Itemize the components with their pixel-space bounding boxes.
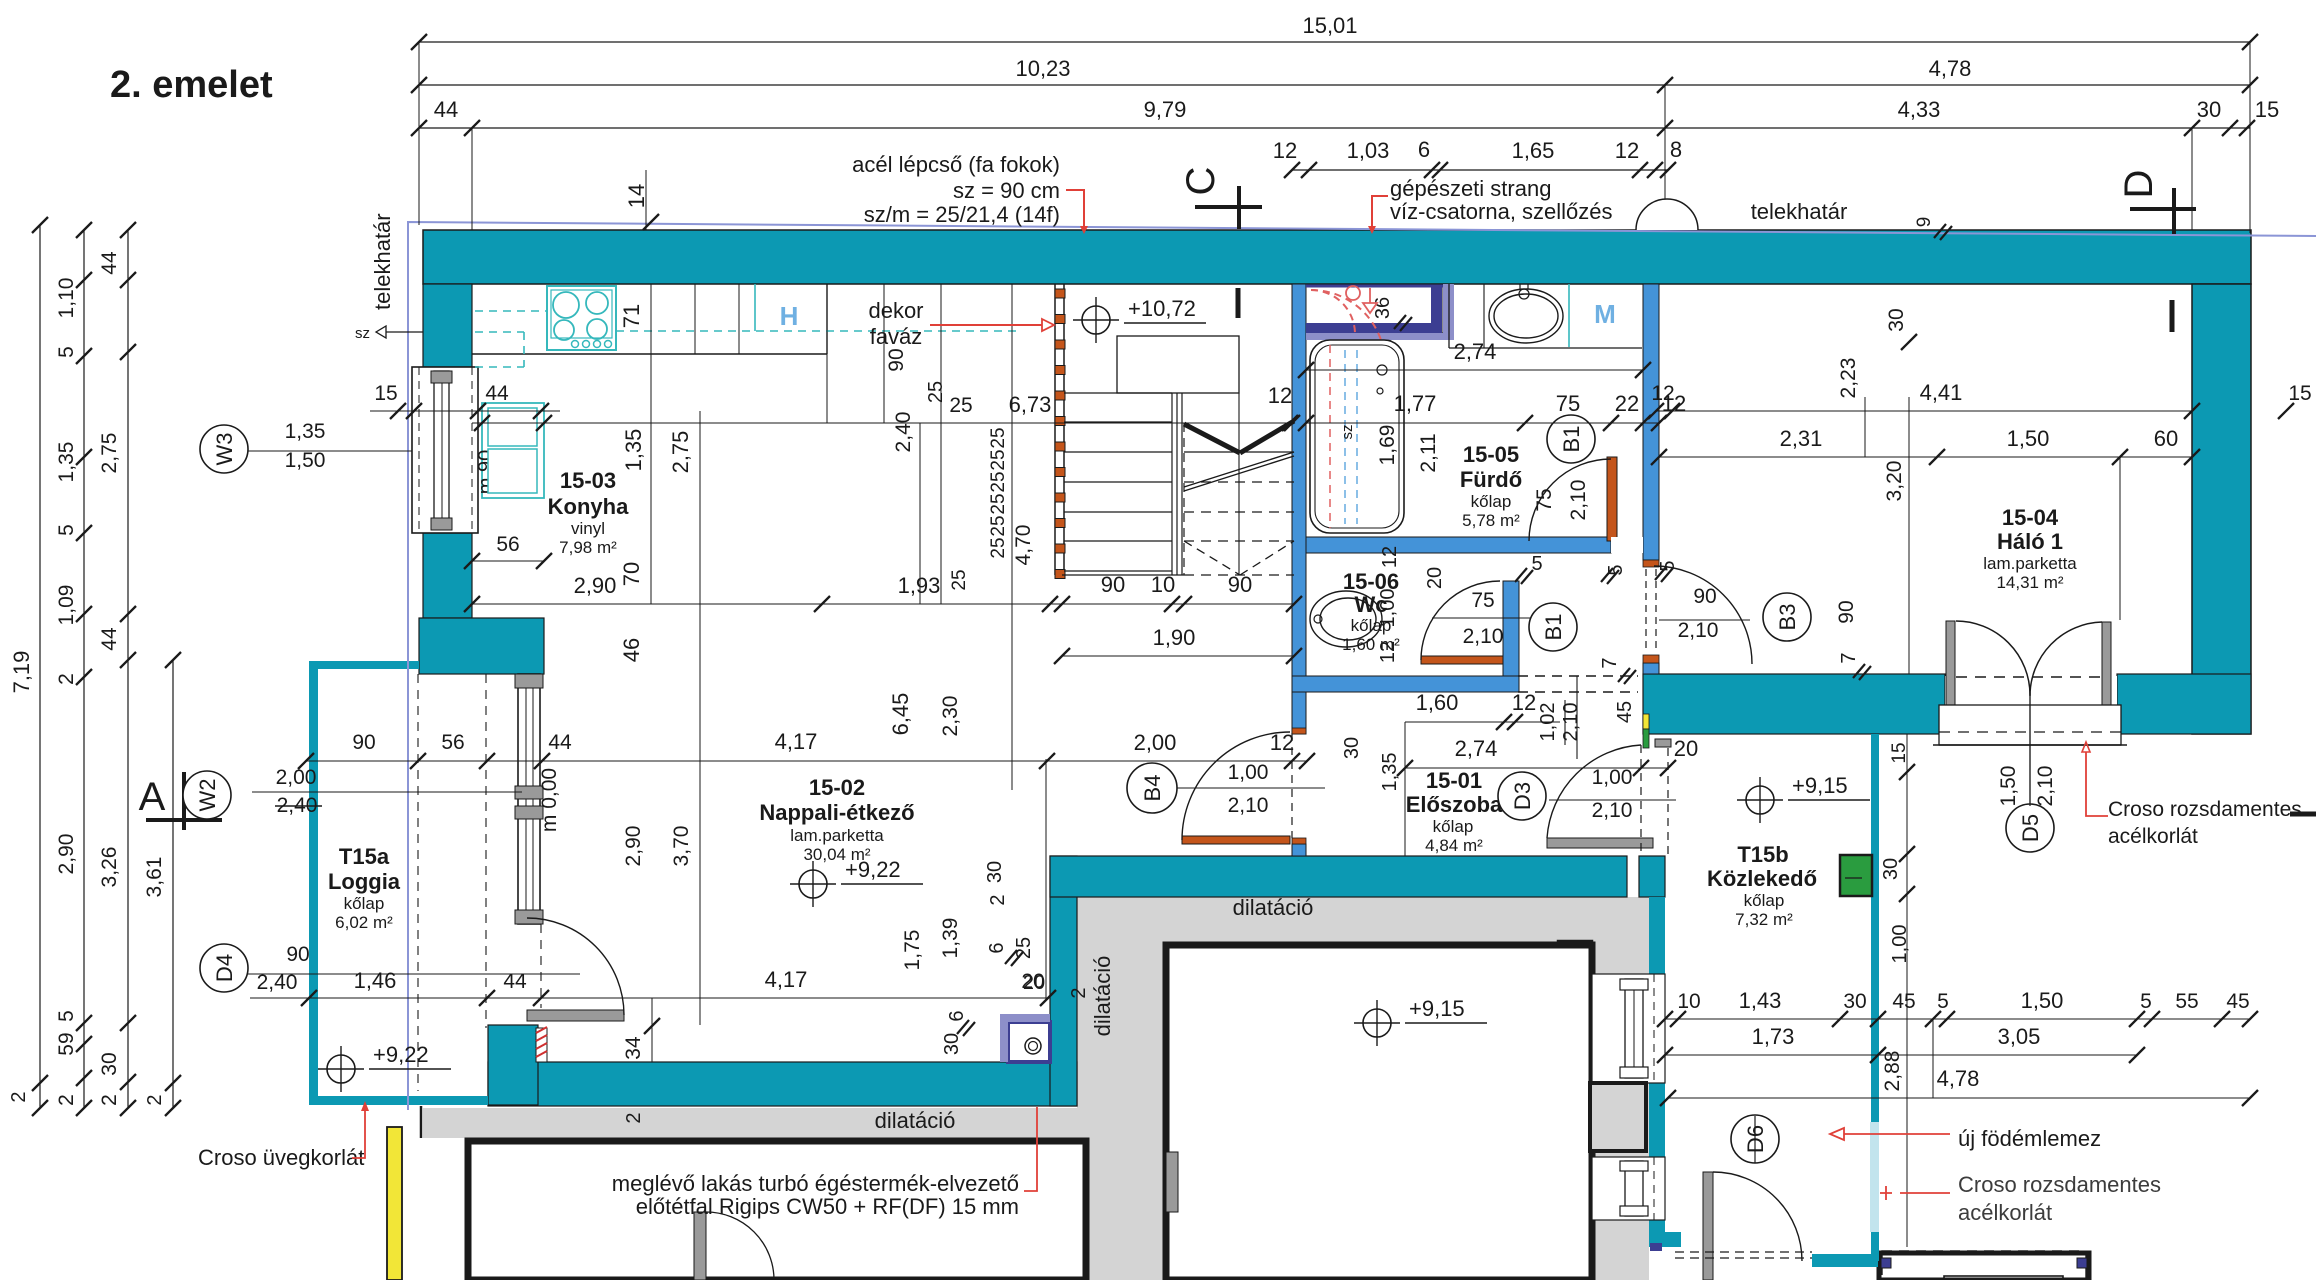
svg-text:15-02: 15-02 [809, 775, 865, 800]
svg-text:gépészeti strang: gépészeti strang [1390, 176, 1551, 201]
svg-text:A: A [139, 775, 166, 819]
svg-text:12: 12 [1379, 546, 1401, 568]
svg-text:1,35: 1,35 [55, 442, 78, 483]
svg-text:6,02 m²: 6,02 m² [335, 913, 393, 932]
svg-text:90: 90 [286, 943, 309, 966]
svg-text:15: 15 [2288, 382, 2311, 405]
svg-text:7,98 m²: 7,98 m² [559, 538, 617, 557]
svg-text:34: 34 [622, 1036, 645, 1060]
svg-text:12: 12 [1273, 138, 1297, 163]
svg-text:1,60: 1,60 [1416, 690, 1459, 715]
svg-text:36: 36 [1372, 297, 1394, 319]
svg-text:2: 2 [55, 673, 78, 685]
svg-text:Croso rozsdamentes: Croso rozsdamentes [2108, 798, 2302, 821]
svg-text:30: 30 [1341, 737, 1363, 759]
svg-text:1,00: 1,00 [1889, 925, 1911, 964]
svg-text:B1: B1 [1541, 614, 1566, 641]
svg-text:1,73: 1,73 [1752, 1024, 1795, 1049]
svg-text:12: 12 [1512, 690, 1536, 715]
svg-text:22: 22 [1615, 391, 1639, 416]
svg-text:3,05: 3,05 [1998, 1024, 2041, 1049]
svg-text:25: 25 [949, 569, 970, 590]
svg-text:2: 2 [1068, 987, 1090, 998]
svg-text:1,69: 1,69 [1376, 425, 1399, 466]
svg-text:Loggia: Loggia [328, 869, 401, 894]
svg-text:acél lépcső (fa fokok): acél lépcső (fa fokok) [852, 152, 1060, 177]
svg-text:90: 90 [1693, 585, 1716, 608]
svg-text:6: 6 [986, 942, 1008, 953]
svg-text:20: 20 [1424, 567, 1446, 589]
svg-text:1,39: 1,39 [939, 918, 962, 959]
svg-text:Konyha: Konyha [548, 494, 629, 519]
svg-text:2: 2 [55, 1094, 78, 1106]
svg-text:12: 12 [1268, 383, 1292, 408]
svg-text:kőlap: kőlap [344, 894, 385, 913]
svg-text:2,10: 2,10 [2034, 766, 2057, 807]
svg-text:2,31: 2,31 [1780, 426, 1823, 451]
svg-text:7: 7 [1838, 652, 1860, 663]
svg-text:7: 7 [1599, 657, 1621, 668]
svg-text:Előszoba: Előszoba [1406, 792, 1503, 817]
svg-text:25: 25 [949, 394, 972, 417]
svg-text:30: 30 [2197, 97, 2221, 122]
svg-text:D4: D4 [212, 954, 237, 982]
svg-text:25: 25 [988, 471, 1009, 492]
svg-text:25: 25 [1013, 937, 1035, 959]
svg-text:14: 14 [624, 184, 649, 208]
svg-text:meglévő lakás turbó égéstermék: meglévő lakás turbó égéstermék-elvezető [612, 1171, 1019, 1196]
svg-text:W3: W3 [212, 433, 237, 466]
svg-text:25: 25 [988, 449, 1009, 470]
svg-text:6,45: 6,45 [888, 693, 913, 736]
svg-text:75: 75 [1556, 391, 1580, 416]
svg-text:90: 90 [352, 731, 375, 754]
svg-text:44: 44 [98, 627, 121, 651]
svg-text:5: 5 [55, 524, 78, 536]
svg-text:25: 25 [925, 381, 947, 403]
svg-text:dilatáció: dilatáció [1090, 956, 1115, 1037]
svg-text:vinyl: vinyl [571, 519, 605, 538]
svg-text:1,46: 1,46 [354, 968, 397, 993]
svg-text:90: 90 [885, 348, 908, 371]
svg-text:1,00: 1,00 [1228, 761, 1269, 784]
svg-text:59: 59 [55, 1032, 78, 1055]
svg-text:56: 56 [441, 731, 464, 754]
svg-text:20: 20 [1021, 970, 1044, 993]
svg-text:5: 5 [1937, 990, 1949, 1013]
svg-text:1,43: 1,43 [1739, 988, 1782, 1013]
svg-text:2: 2 [623, 1112, 645, 1123]
svg-text:sz: sz [1339, 425, 1356, 440]
svg-text:5: 5 [55, 346, 78, 358]
svg-text:lam.parketta: lam.parketta [1983, 554, 2077, 573]
svg-text:Croso üvegkorlát: Croso üvegkorlát [198, 1145, 364, 1170]
svg-text:Háló 1: Háló 1 [1997, 529, 2063, 554]
svg-text:71: 71 [619, 304, 644, 328]
svg-text:45: 45 [1892, 990, 1915, 1013]
svg-text:C: C [1179, 167, 1223, 196]
svg-text:10: 10 [1677, 990, 1700, 1013]
svg-text:Croso rozsdamentes: Croso rozsdamentes [1958, 1172, 2161, 1197]
svg-text:3,70: 3,70 [670, 826, 693, 867]
svg-text:lam.parketta: lam.parketta [790, 826, 884, 845]
svg-text:4,41: 4,41 [1920, 380, 1963, 405]
svg-text:90: 90 [1835, 600, 1858, 623]
svg-text:1,77: 1,77 [1394, 391, 1437, 416]
svg-text:1,10: 1,10 [55, 278, 78, 319]
svg-text:M: M [1594, 299, 1616, 329]
svg-text:12: 12 [1615, 138, 1639, 163]
svg-text:4,78: 4,78 [1937, 1066, 1980, 1091]
svg-text:2,90: 2,90 [622, 826, 645, 867]
svg-text:30: 30 [984, 861, 1006, 883]
svg-text:Fürdő: Fürdő [1460, 467, 1522, 492]
svg-text:2,23: 2,23 [1837, 358, 1860, 399]
svg-text:90: 90 [1228, 572, 1252, 597]
svg-text:10: 10 [1151, 572, 1175, 597]
svg-text:1,03: 1,03 [1347, 138, 1390, 163]
svg-text:12: 12 [1377, 641, 1399, 663]
svg-text:30: 30 [1880, 858, 1902, 880]
svg-text:1,65: 1,65 [1512, 138, 1555, 163]
svg-text:9,79: 9,79 [1144, 97, 1187, 122]
svg-text:kőlap: kőlap [1471, 492, 1512, 511]
svg-text:1,50: 1,50 [2007, 426, 2050, 451]
svg-text:+10,72: +10,72 [1128, 296, 1196, 321]
svg-text:1,50: 1,50 [2021, 988, 2064, 1013]
svg-text:4,70: 4,70 [1012, 525, 1035, 566]
svg-text:4,17: 4,17 [775, 729, 818, 754]
svg-text:44: 44 [485, 382, 509, 405]
svg-text:2,10: 2,10 [1567, 480, 1590, 521]
svg-text:faváz: faváz [870, 324, 923, 349]
svg-text:70: 70 [619, 562, 644, 586]
svg-text:1,00: 1,00 [1592, 766, 1633, 789]
svg-text:5: 5 [55, 1010, 78, 1022]
svg-text:25: 25 [988, 537, 1009, 558]
svg-text:15,01: 15,01 [1302, 13, 1357, 38]
svg-text:H: H [780, 301, 799, 331]
svg-text:25: 25 [988, 493, 1009, 514]
svg-text:2: 2 [987, 894, 1009, 905]
svg-text:+9,15: +9,15 [1409, 996, 1465, 1021]
svg-text:1,09: 1,09 [55, 585, 78, 626]
svg-text:55: 55 [2175, 990, 2198, 1013]
svg-text:2,40: 2,40 [892, 412, 915, 453]
svg-text:30: 30 [941, 1033, 963, 1055]
svg-text:kőlap: kőlap [1744, 891, 1785, 910]
svg-text:T15a: T15a [339, 844, 390, 869]
svg-text:víz-csatorna, szellőzés: víz-csatorna, szellőzés [1390, 199, 1613, 224]
svg-text:15-01: 15-01 [1426, 768, 1482, 793]
svg-text:4,84 m²: 4,84 m² [1425, 836, 1483, 855]
svg-text:T15b: T15b [1737, 842, 1788, 867]
svg-text:+9,22: +9,22 [845, 857, 901, 882]
svg-text:3,26: 3,26 [98, 847, 121, 888]
svg-text:8: 8 [1670, 137, 1682, 162]
svg-text:5,78 m²: 5,78 m² [1462, 511, 1520, 530]
svg-text:5: 5 [1657, 560, 1679, 571]
svg-text:2. emelet: 2. emelet [110, 64, 273, 106]
svg-text:3,20: 3,20 [1883, 461, 1906, 502]
svg-text:6,73: 6,73 [1009, 392, 1052, 417]
svg-text:90: 90 [1101, 572, 1125, 597]
svg-text:56: 56 [496, 533, 519, 556]
svg-text:10,23: 10,23 [1015, 56, 1070, 81]
svg-text:75: 75 [1533, 488, 1556, 511]
svg-text:sz/m = 25/21,4 (14f): sz/m = 25/21,4 (14f) [864, 202, 1060, 227]
svg-text:2,10: 2,10 [1560, 703, 1582, 742]
svg-text:30: 30 [98, 1052, 121, 1075]
svg-text:1,02: 1,02 [1537, 703, 1559, 742]
svg-text:B1: B1 [1559, 426, 1584, 453]
svg-text:4,17: 4,17 [765, 967, 808, 992]
svg-text:acélkorlát: acélkorlát [1958, 1200, 2052, 1225]
svg-text:előtétfal Rigips CW50 + RF(DF): előtétfal Rigips CW50 + RF(DF) 15 mm [636, 1194, 1019, 1219]
svg-text:+9,15: +9,15 [1792, 773, 1848, 798]
svg-text:telekhatár: telekhatár [370, 213, 395, 310]
svg-text:6: 6 [946, 1010, 968, 1021]
svg-text:1,35: 1,35 [621, 429, 646, 472]
svg-text:+9,22: +9,22 [373, 1042, 429, 1067]
svg-text:W2: W2 [195, 779, 220, 812]
svg-text:1,35: 1,35 [1379, 753, 1401, 792]
svg-text:2,74: 2,74 [1455, 736, 1498, 761]
svg-text:15: 15 [374, 382, 397, 405]
svg-text:B4: B4 [1140, 775, 1165, 802]
svg-text:1,00: 1,00 [1377, 589, 1399, 628]
svg-text:6: 6 [1418, 137, 1430, 162]
svg-text:30: 30 [1885, 308, 1908, 331]
svg-text:1,50: 1,50 [285, 449, 326, 472]
svg-text:1,35: 1,35 [285, 420, 326, 443]
svg-text:acélkorlát: acélkorlát [2108, 825, 2198, 848]
svg-text:2: 2 [144, 1094, 166, 1105]
svg-text:2,75: 2,75 [668, 431, 693, 474]
svg-text:15: 15 [2255, 97, 2279, 122]
svg-text:3,61: 3,61 [143, 857, 166, 898]
svg-text:45: 45 [2226, 990, 2249, 1013]
svg-text:60: 60 [2154, 426, 2178, 451]
svg-text:12: 12 [1651, 382, 1674, 405]
svg-text:2,75: 2,75 [98, 433, 121, 474]
svg-text:sz: sz [355, 325, 370, 342]
svg-text:sz = 90 cm: sz = 90 cm [953, 178, 1060, 203]
svg-text:2,11: 2,11 [1417, 433, 1440, 472]
svg-text:1,93: 1,93 [898, 573, 941, 598]
svg-text:5: 5 [2140, 990, 2152, 1013]
svg-text:2,88: 2,88 [1881, 1051, 1904, 1092]
svg-text:15-04: 15-04 [2002, 505, 2059, 530]
svg-text:15-05: 15-05 [1463, 442, 1519, 467]
svg-text:15: 15 [1889, 742, 1910, 763]
svg-text:D: D [2117, 170, 2161, 199]
svg-text:dekor: dekor [868, 298, 923, 323]
svg-text:1,50: 1,50 [1997, 766, 2020, 807]
svg-text:46: 46 [619, 638, 644, 662]
svg-text:7,19: 7,19 [9, 651, 34, 694]
svg-text:20: 20 [1674, 736, 1698, 761]
svg-text:2: 2 [8, 1091, 30, 1102]
svg-text:5: 5 [1531, 553, 1542, 575]
svg-text:44: 44 [548, 731, 572, 754]
svg-text:új födémlemez: új födémlemez [1958, 1126, 2101, 1151]
svg-text:44: 44 [503, 970, 527, 993]
svg-text:Közlekedő: Közlekedő [1707, 866, 1817, 891]
svg-text:44: 44 [434, 97, 458, 122]
svg-text:kőlap: kőlap [1433, 817, 1474, 836]
svg-text:dilatáció: dilatáció [875, 1108, 956, 1133]
svg-text:75: 75 [1471, 589, 1494, 612]
svg-text:4,33: 4,33 [1898, 97, 1941, 122]
svg-text:D5: D5 [2018, 814, 2043, 842]
svg-text:2,30: 2,30 [939, 696, 962, 737]
svg-text:dilatáció: dilatáció [1233, 895, 1314, 920]
svg-text:2,10: 2,10 [1228, 794, 1269, 817]
svg-text:12: 12 [1270, 730, 1294, 755]
svg-text:9: 9 [1914, 217, 1935, 228]
svg-text:2,90: 2,90 [55, 834, 78, 875]
svg-text:15-03: 15-03 [560, 468, 616, 493]
svg-text:2,10: 2,10 [1463, 625, 1504, 648]
svg-text:2: 2 [98, 1094, 121, 1106]
svg-text:4,78: 4,78 [1929, 56, 1972, 81]
svg-text:44: 44 [98, 251, 121, 275]
svg-text:25: 25 [988, 427, 1009, 448]
svg-text:Nappali-étkező: Nappali-étkező [759, 800, 914, 825]
svg-text:m 0,00: m 0,00 [538, 768, 561, 832]
svg-text:1,90: 1,90 [1153, 625, 1196, 650]
svg-text:telekhatár: telekhatár [1751, 199, 1848, 224]
svg-text:25: 25 [988, 515, 1009, 536]
svg-text:2,10: 2,10 [1592, 799, 1633, 822]
svg-text:D3: D3 [1510, 782, 1535, 810]
svg-text:7,32 m²: 7,32 m² [1735, 910, 1793, 929]
svg-text:30: 30 [1843, 990, 1866, 1013]
svg-text:2,74: 2,74 [1454, 339, 1497, 364]
svg-text:2,00: 2,00 [1134, 730, 1177, 755]
svg-text:2,10: 2,10 [1678, 619, 1719, 642]
svg-text:2,00: 2,00 [276, 766, 317, 789]
svg-text:45: 45 [1614, 701, 1636, 723]
svg-text:1,75: 1,75 [901, 930, 924, 971]
svg-text:B3: B3 [1775, 604, 1800, 631]
svg-text:2,90: 2,90 [574, 573, 617, 598]
svg-text:14,31 m²: 14,31 m² [1996, 573, 2063, 592]
